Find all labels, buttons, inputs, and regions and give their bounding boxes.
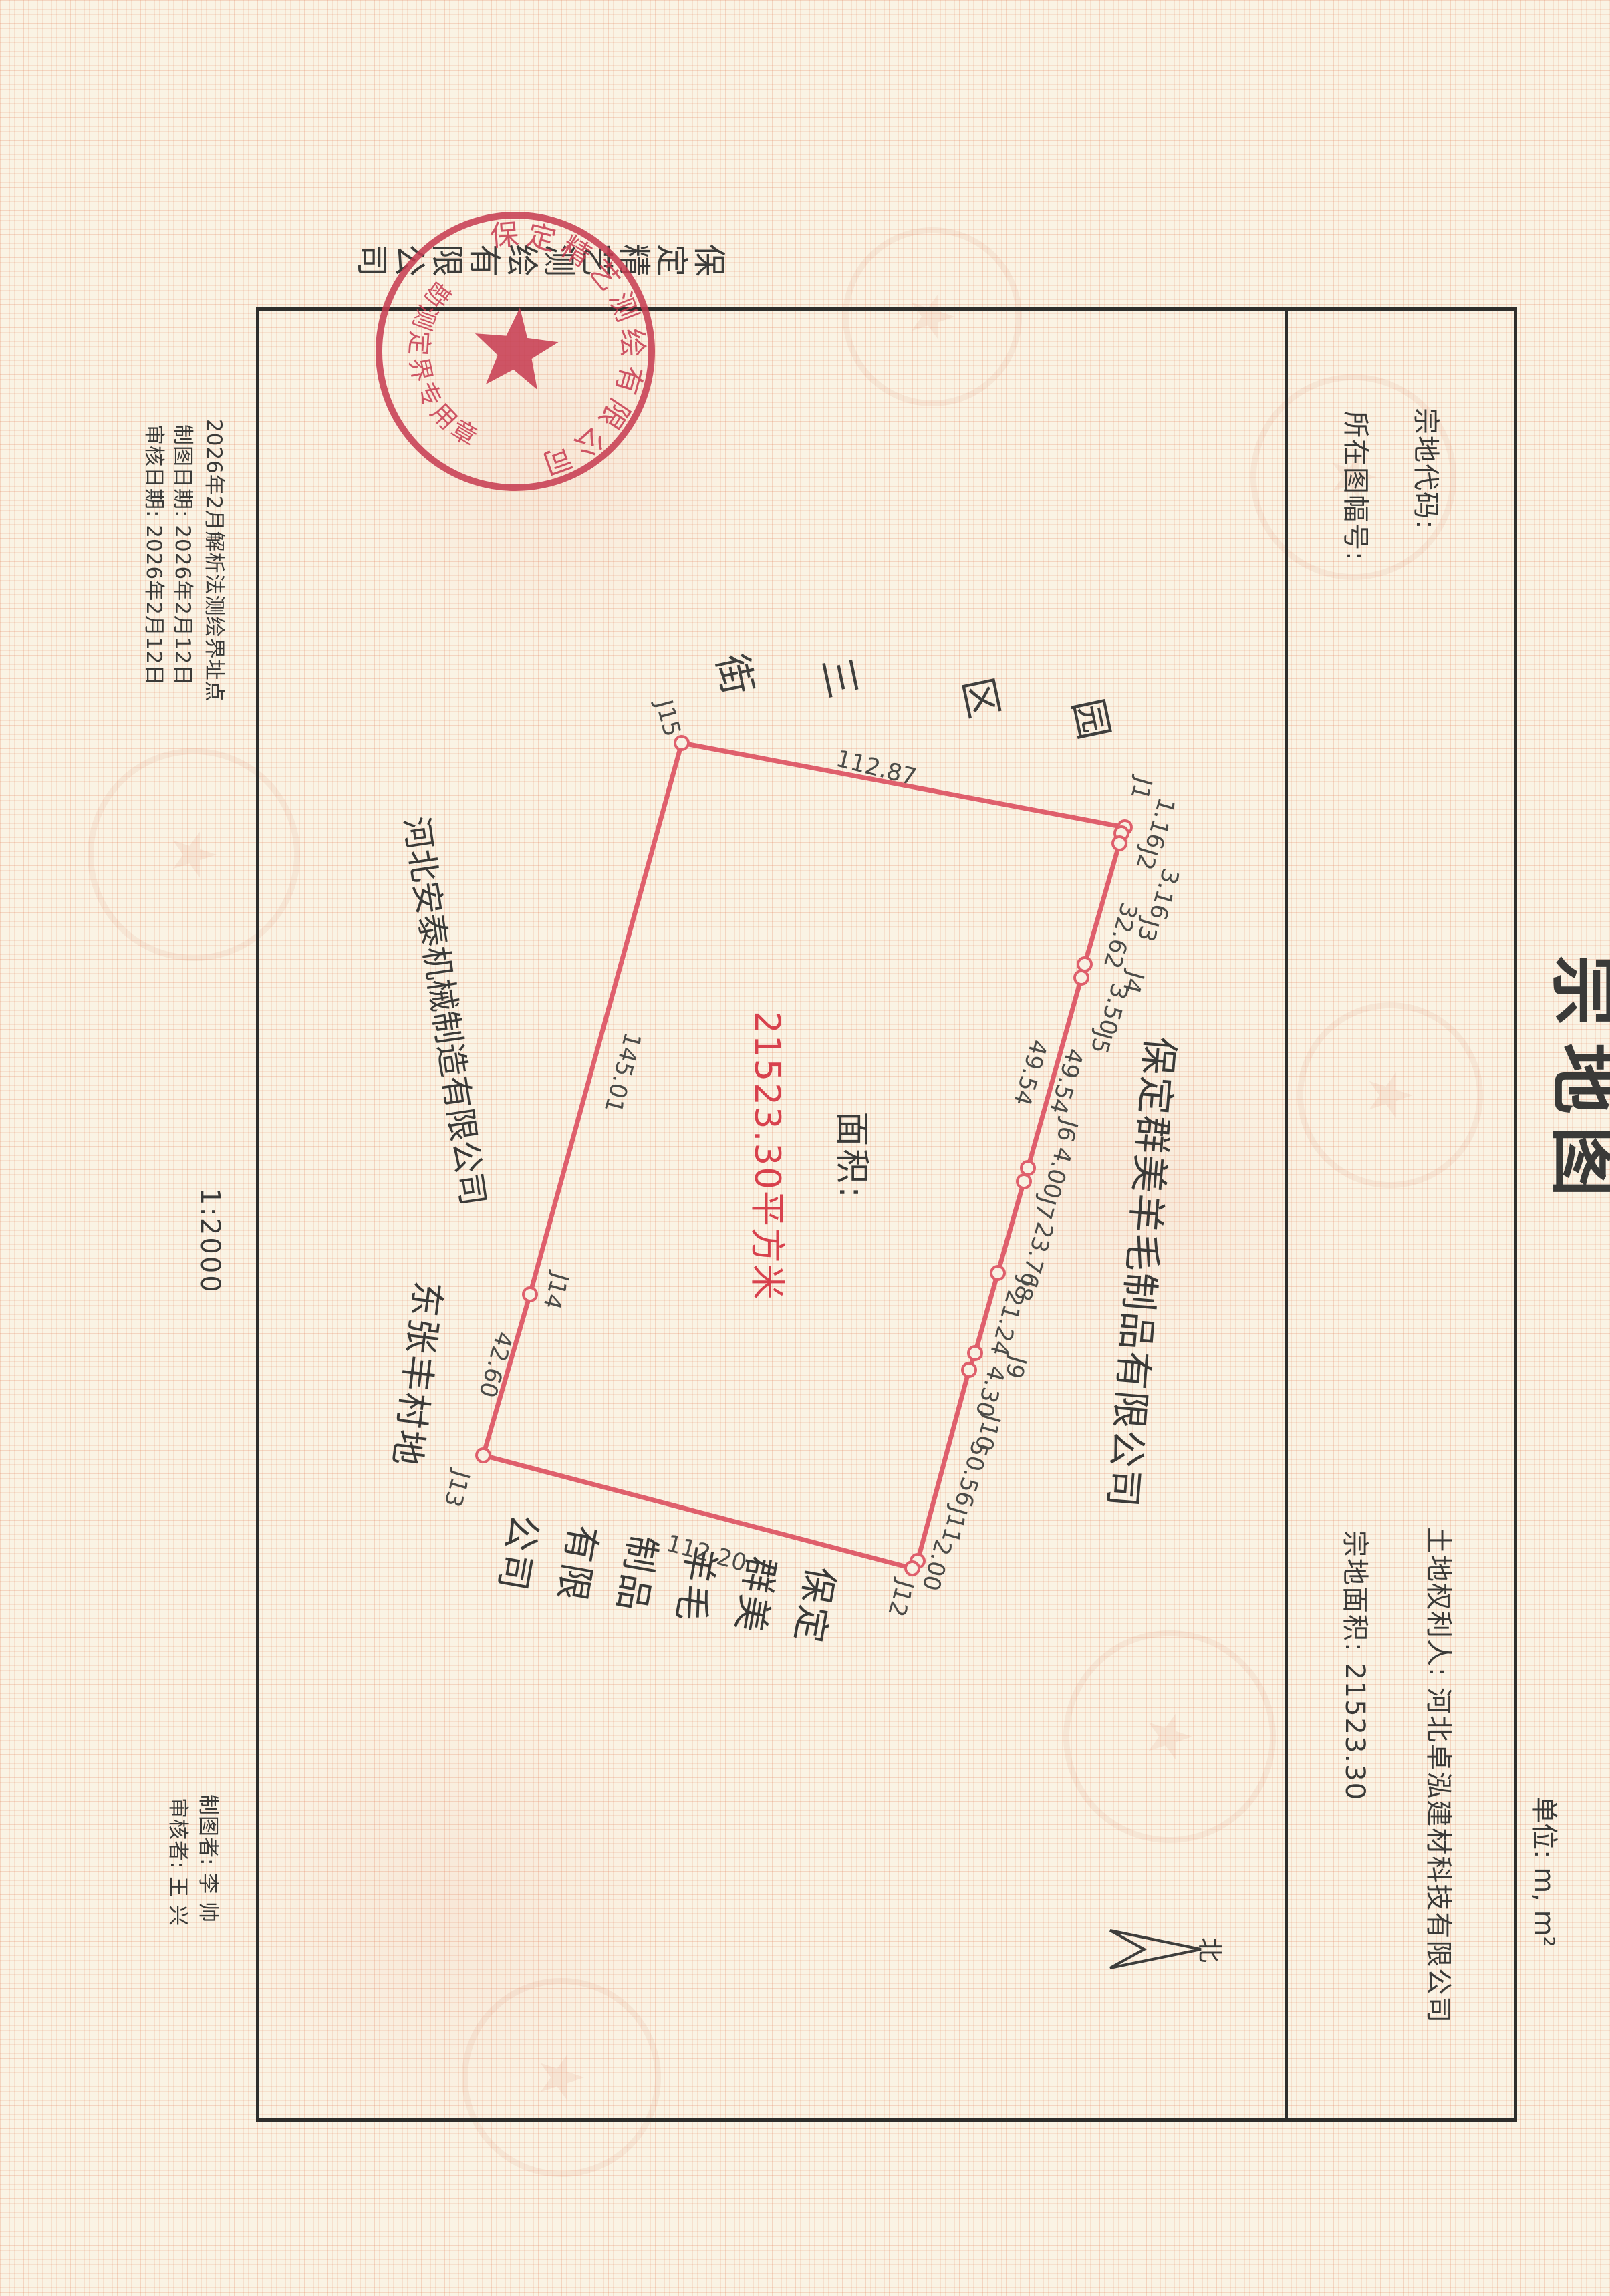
boundary-point-J14 bbox=[523, 1288, 537, 1301]
boundary-point-J9 bbox=[968, 1346, 982, 1360]
stamp-bottom-text: 勘测定界专用章 bbox=[388, 272, 490, 464]
north-label: 北 bbox=[1194, 1937, 1230, 1963]
drafter: 制图者: 李 帅 bbox=[195, 1794, 225, 1923]
boundary-point-J5 bbox=[1075, 971, 1088, 984]
boundary-point-J10 bbox=[962, 1363, 976, 1377]
boundary-point-J7 bbox=[1017, 1175, 1031, 1188]
survey-note: 2026年2月解析法测绘界址点 bbox=[201, 419, 231, 702]
boundary-point-J15 bbox=[675, 736, 688, 750]
review-date: 审核日期: 2026年2月12日 bbox=[141, 424, 171, 686]
boundary-point-J3 bbox=[1113, 837, 1126, 850]
north-arrow-icon bbox=[1110, 1930, 1201, 1968]
draw-date: 制图日期: 2026年2月12日 bbox=[170, 424, 200, 686]
red-seal-stamp: 保定精艺测绘有限公司 勘测定界专用章 bbox=[355, 191, 676, 512]
area-label: 面积: bbox=[830, 999, 880, 1313]
stamp-star-icon bbox=[472, 301, 567, 400]
boundary-point-J13 bbox=[477, 1449, 490, 1462]
boundary-point-J8 bbox=[991, 1266, 1004, 1280]
map-scale: 1:2000 bbox=[194, 1188, 225, 1294]
boundary-point-J12 bbox=[906, 1562, 919, 1575]
boundary-point-J4 bbox=[1078, 958, 1091, 971]
boundary-point-J6 bbox=[1021, 1161, 1035, 1175]
area-value: 21523.30平方米 bbox=[745, 999, 795, 1313]
document-page: ★ ★ ★ ★ ★ ★ 宗地图 单位: m, m² 宗地代码: 所在图幅号: 土… bbox=[0, 0, 1610, 2296]
area-block: 面积: 21523.30平方米 bbox=[745, 999, 880, 1313]
scanned-parcel-map: ★ ★ ★ ★ ★ ★ 宗地图 单位: m, m² 宗地代码: 所在图幅号: 土… bbox=[0, 0, 1610, 2296]
reviewer: 审核者: 王 兴 bbox=[165, 1798, 195, 1926]
svg-text:勘测定界专用章: 勘测定界专用章 bbox=[388, 272, 490, 464]
